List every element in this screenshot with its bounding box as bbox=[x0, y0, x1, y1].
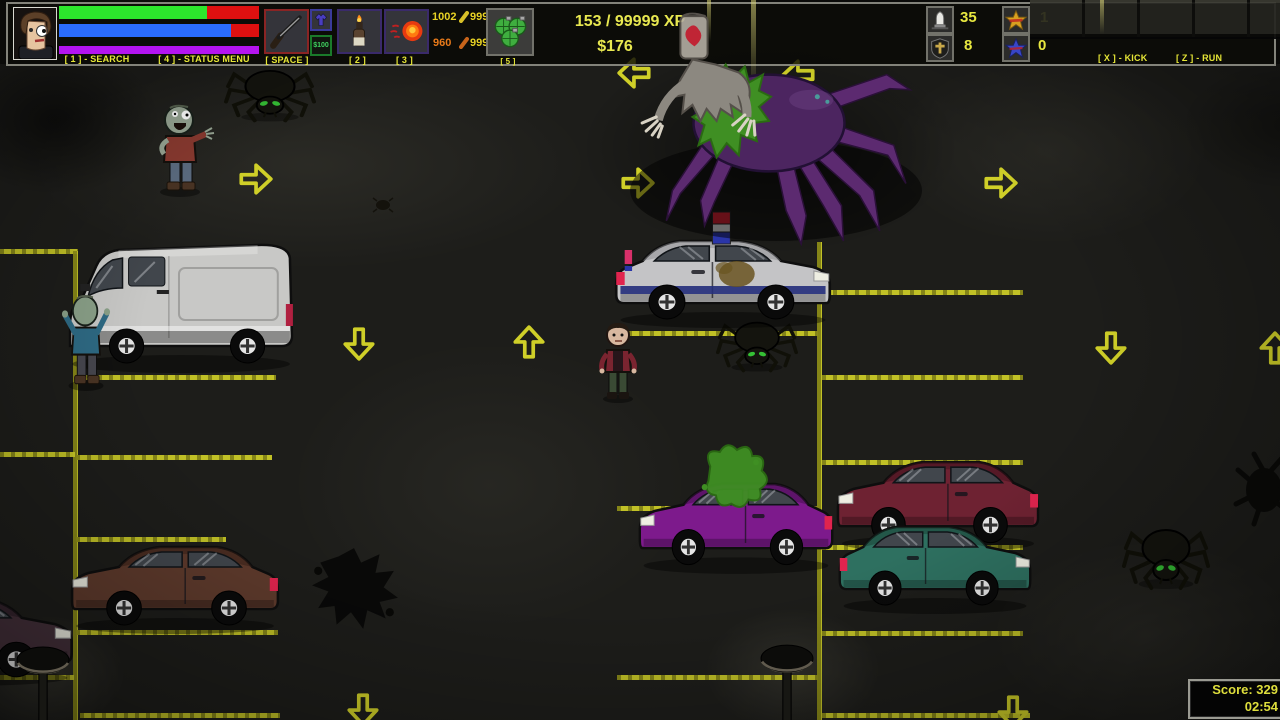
space-key-label: [ SPACE ] bbox=[258, 55, 316, 65]
molotov-icon bbox=[339, 11, 380, 52]
fireball-icon bbox=[386, 11, 427, 52]
points-counter-tile bbox=[1002, 34, 1030, 62]
cross-shield-icon bbox=[928, 36, 952, 60]
brick-wall bbox=[1030, 0, 1280, 39]
parking-line bbox=[80, 713, 280, 718]
slot5-key-label: [ 5 ] bbox=[486, 57, 530, 66]
arrow-down bbox=[344, 690, 382, 720]
parking-line bbox=[0, 452, 75, 457]
arrow-up bbox=[510, 324, 548, 362]
slot2-key-label: [ 2 ] bbox=[337, 55, 378, 65]
arrow-right bbox=[981, 164, 1019, 202]
game-window: [ 1 ] - SEARCH [ 4 ] - STATUS MENU [ SPA… bbox=[0, 0, 1280, 720]
teal-car bbox=[836, 496, 1034, 616]
player-avatar bbox=[13, 7, 57, 60]
money-tag-tile: $100 bbox=[310, 35, 332, 56]
dead-bug bbox=[372, 197, 394, 213]
shirt-icon bbox=[312, 11, 330, 29]
run-key-label: [ Z ] - RUN bbox=[1176, 53, 1246, 63]
game-scene[interactable] bbox=[0, 0, 1280, 720]
parking-line bbox=[822, 290, 1023, 295]
blue-star-icon bbox=[1004, 36, 1028, 60]
weapon-slot-shotgun[interactable] bbox=[264, 9, 309, 54]
energy-bar bbox=[59, 46, 259, 54]
score-box: Score: 329 02:54 bbox=[1188, 679, 1280, 719]
giant-spider-boss bbox=[620, 4, 922, 246]
parking-line bbox=[822, 631, 1023, 636]
spider-top-left bbox=[224, 64, 316, 124]
arrow-down bbox=[1092, 328, 1130, 366]
arrow-right bbox=[236, 160, 274, 198]
arrow-up bbox=[1256, 330, 1280, 368]
health-bar bbox=[59, 6, 259, 19]
arrow-down bbox=[340, 324, 378, 362]
shell-icon bbox=[459, 10, 469, 28]
bullet-icon bbox=[928, 8, 952, 32]
round-icon bbox=[459, 36, 469, 54]
grenades-icon bbox=[488, 10, 532, 54]
player-character bbox=[594, 318, 642, 404]
parking-line bbox=[822, 375, 1023, 380]
points-count: 0 bbox=[1038, 37, 1046, 54]
ammo-count-special: 960 bbox=[433, 37, 451, 49]
gold-star-icon bbox=[1004, 8, 1028, 32]
medkit-counter-tile bbox=[926, 34, 954, 62]
search-key-label: [ 1 ] - SEARCH bbox=[47, 54, 147, 64]
shotgun-icon bbox=[266, 11, 307, 52]
money-tag: $100 bbox=[312, 37, 330, 54]
weapon-slot-molotov[interactable] bbox=[337, 9, 382, 54]
slot3-key-label: [ 3 ] bbox=[384, 55, 425, 65]
status-menu-key-label: [ 4 ] - STATUS MENU bbox=[148, 54, 260, 64]
brown-car bbox=[68, 516, 282, 636]
bullet-count: 35 bbox=[960, 9, 977, 26]
spider-splat-right-edge bbox=[1234, 450, 1280, 528]
purple-car bbox=[636, 452, 836, 576]
lives-counter-tile bbox=[1002, 6, 1030, 34]
ammo-count-rifle: 1002 bbox=[432, 11, 456, 23]
weapon-slot-grenades[interactable] bbox=[486, 8, 534, 56]
stamina-bar bbox=[59, 24, 259, 37]
black-splat bbox=[308, 546, 400, 634]
street-lamp-center bbox=[760, 640, 814, 720]
bullet-counter-tile bbox=[926, 6, 954, 34]
weapon-slot-fireball[interactable] bbox=[384, 9, 429, 54]
medkit-count: 8 bbox=[964, 37, 972, 54]
score-value: Score: 329 bbox=[1190, 681, 1278, 698]
kick-key-label: [ X ] - KICK bbox=[1098, 53, 1178, 63]
street-lamp-left bbox=[16, 642, 70, 720]
zombie-at-van bbox=[58, 288, 114, 392]
zombie-red-shirt bbox=[148, 98, 212, 198]
parking-line bbox=[76, 455, 272, 460]
arrow-down bbox=[994, 692, 1032, 720]
spider-bottom-right bbox=[1122, 522, 1210, 592]
armor-tile[interactable] bbox=[310, 9, 332, 31]
timer-value: 02:54 bbox=[1190, 698, 1278, 715]
